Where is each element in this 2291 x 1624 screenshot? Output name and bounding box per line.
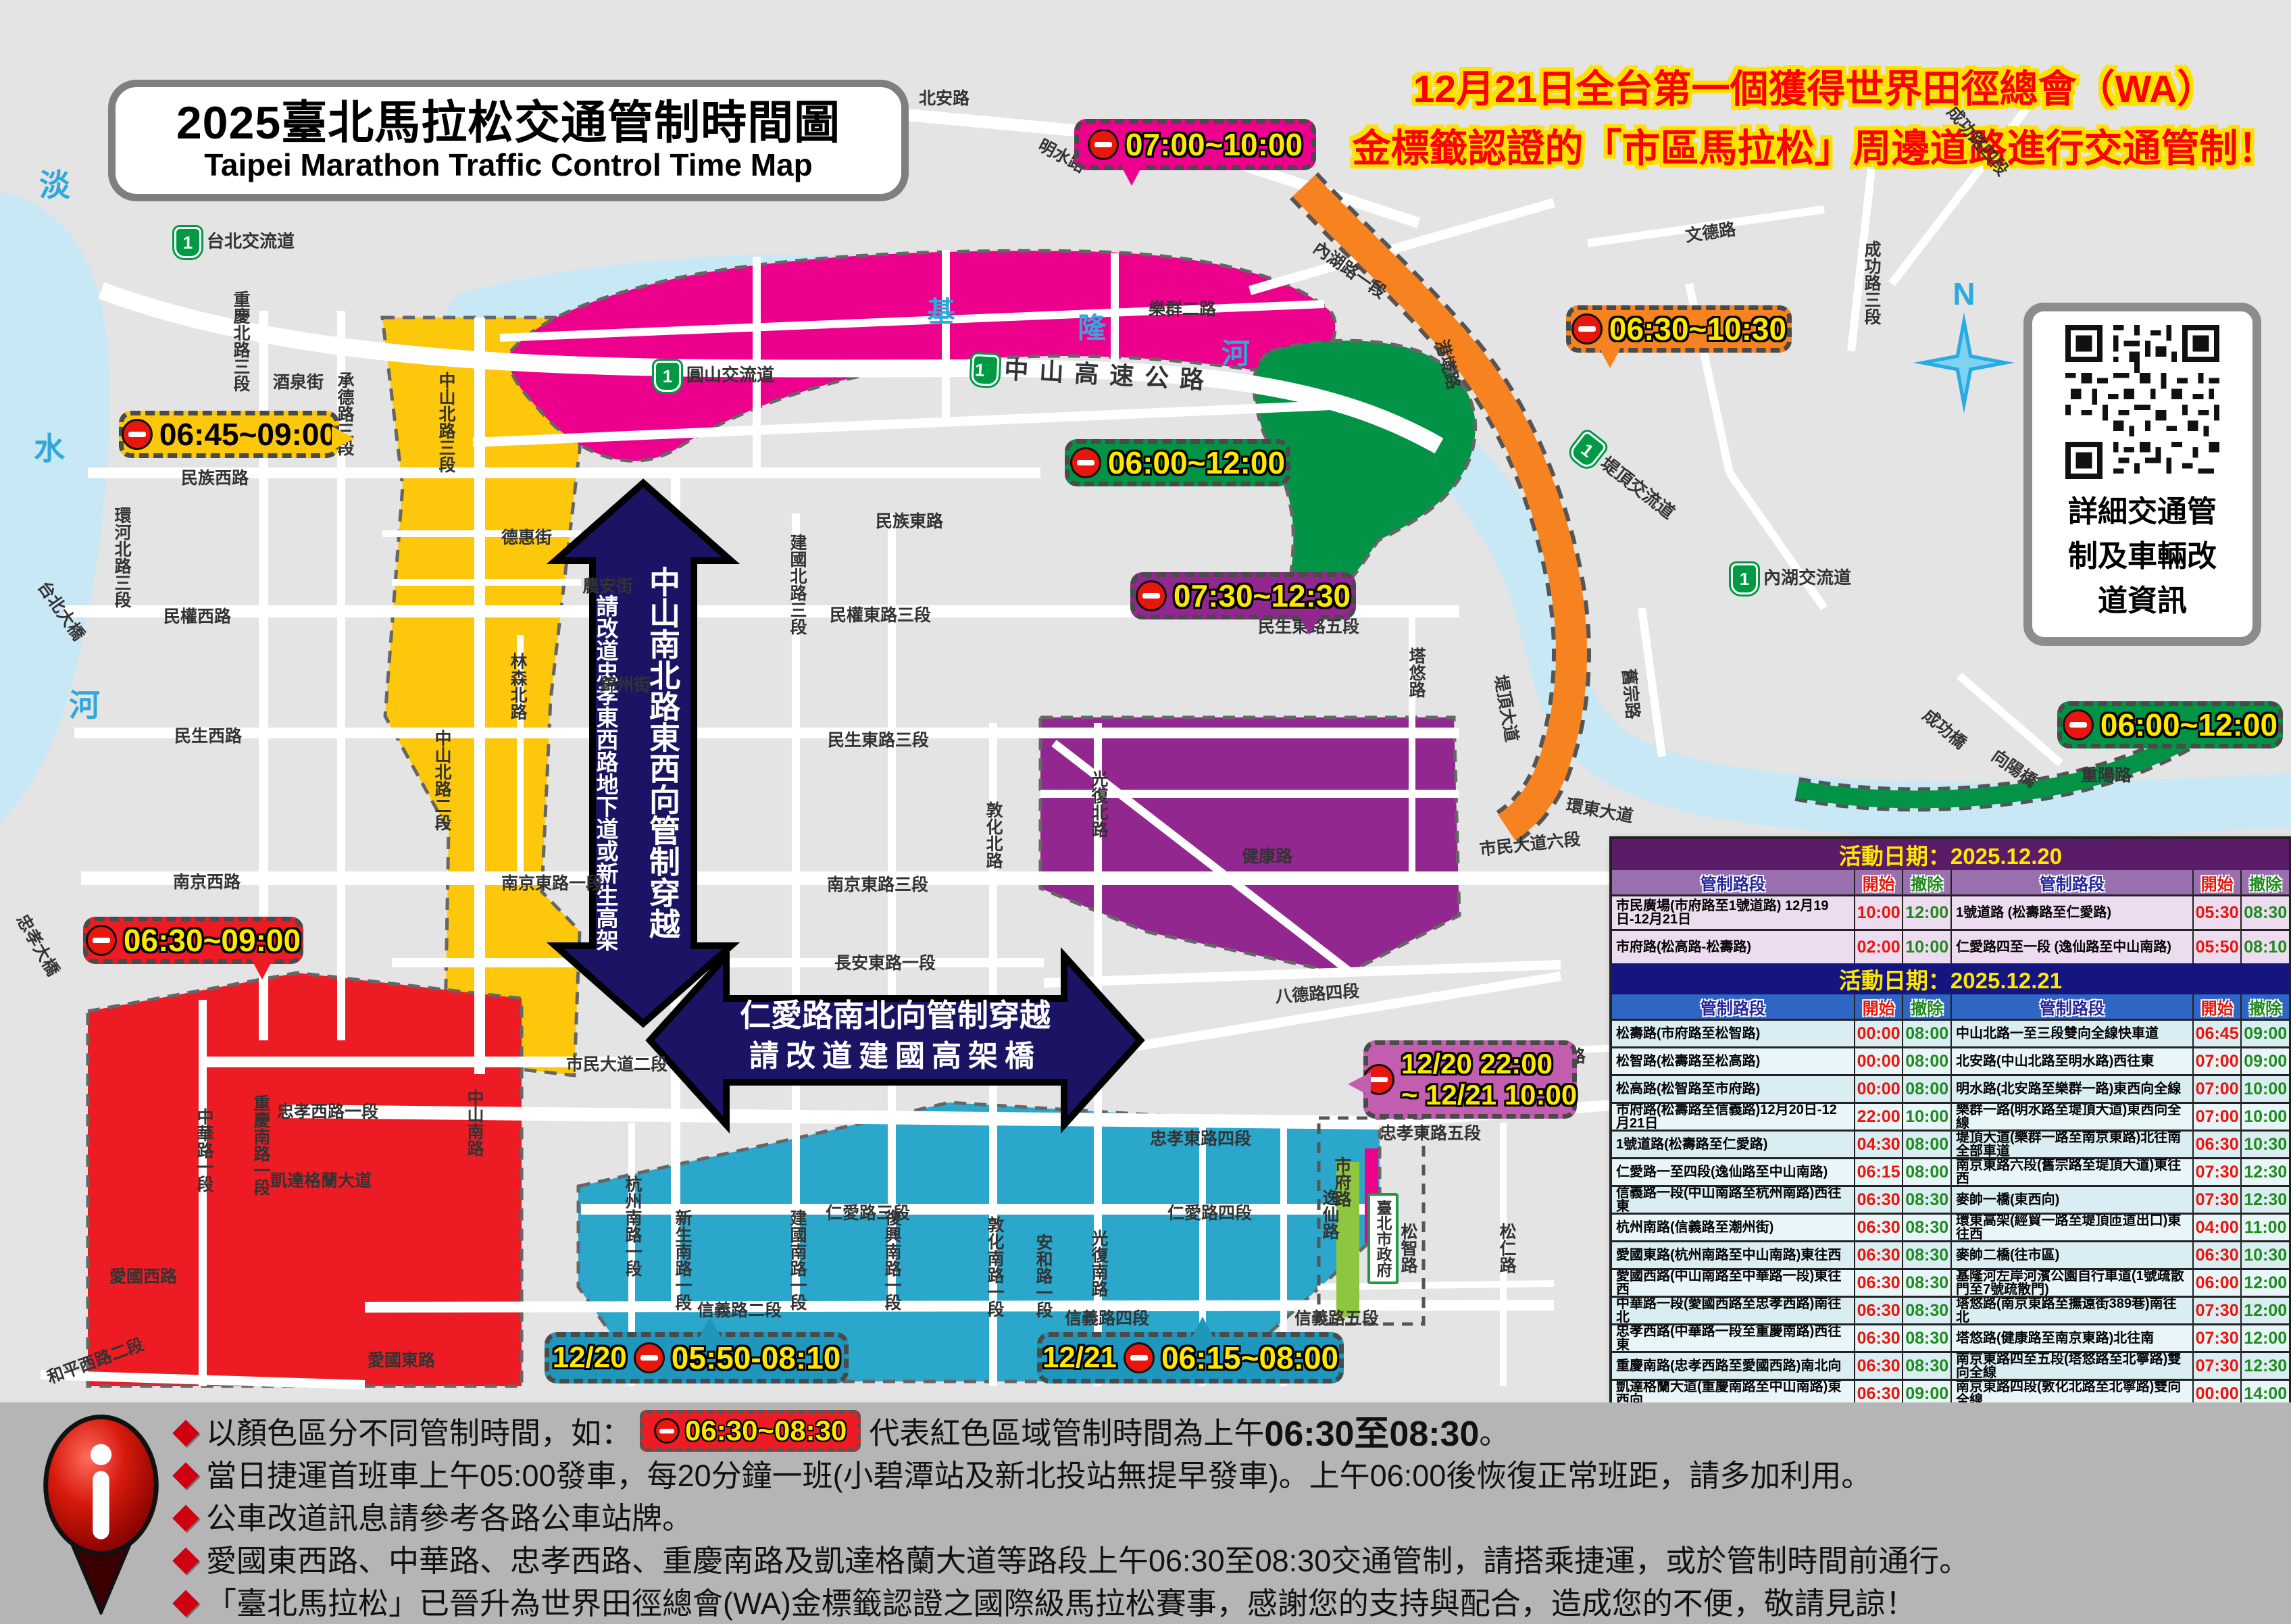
map-label: 松仁路 xyxy=(1494,1223,1519,1273)
map-label: 重慶北路三段 xyxy=(228,290,253,392)
no-entry-icon xyxy=(2063,709,2094,740)
badge-pointer xyxy=(698,1317,722,1340)
map-label: 淡 xyxy=(39,161,70,205)
road-segment-cell: 塔悠路(南京東路至撫遠街389巷)南往北 xyxy=(1950,1298,2192,1323)
diamond-bullet-icon: ◆ xyxy=(172,1538,199,1579)
diamond-bullet-icon: ◆ xyxy=(172,1453,199,1494)
map-label: 忠孝東路四段 xyxy=(1150,1125,1251,1150)
end-time-cell: 08:00 xyxy=(1902,1159,1950,1185)
no-entry-icon xyxy=(1070,447,1101,478)
highway-shield-icon: 1 xyxy=(971,354,999,386)
road-segment-cell: 南京東路六段(舊宗路至堤頂大道)東往西 xyxy=(1950,1159,2192,1185)
table-row: 市府路(松高路-松壽路)02:0010:00仁愛路四至一段 (逸仙路至中山南路)… xyxy=(1612,929,2289,963)
time-badge: 06:30~09:00 xyxy=(83,917,303,964)
map-label: 南京東路一段 xyxy=(501,870,603,894)
headline-line1: 12月21日全台第一個獲得世界田徑總會（WA） xyxy=(1338,59,2291,119)
time-badge: 12/2005:50-08:10 xyxy=(545,1332,849,1384)
road-segment-cell: 麥帥二橋(往市區) xyxy=(1950,1242,2192,1268)
time-badge: 12/20 22:00~ 12/21 10:00 xyxy=(1363,1040,1577,1119)
start-time-cell: 00:00 xyxy=(1854,1021,1903,1046)
map-label: 舊宗路 xyxy=(1617,667,1646,720)
end-time-cell: 09:00 xyxy=(2240,1048,2289,1074)
map-label: 民權西路 xyxy=(163,603,231,628)
table-header-cell: 開始 xyxy=(1854,870,1903,894)
road-segment-cell: 明水路(北安路至樂群一路)東西向全線 xyxy=(1950,1076,2192,1102)
legend-text: 以顏色區分不同管制時間，如： xyxy=(206,1409,632,1452)
end-time-cell: 11:00 xyxy=(2240,1215,2289,1240)
end-time-cell: 10:00 xyxy=(2240,1104,2289,1130)
map-label: 南京西路 xyxy=(173,869,241,893)
legend-item: ◆公車改道訊息請參考各路公車站牌。 xyxy=(172,1494,2287,1537)
no-entry-icon xyxy=(1136,580,1167,611)
legend-text: 「臺北馬拉松」已晉升為世界田徑總會(WA)金標籤認證之國際級馬拉松賽事，感謝您的… xyxy=(206,1579,1916,1623)
cityhall-label: 臺北市政府 xyxy=(1367,1193,1399,1284)
map-title-card: 2025臺北馬拉松交通管制時間圖 Taipei Marathon Traffic… xyxy=(108,80,909,201)
compass-n-label: N xyxy=(1913,276,2015,312)
map-label: 建國北路三段 xyxy=(785,534,809,635)
highway-shield-icon: 1 xyxy=(174,227,201,258)
map-label: 光復南路 xyxy=(1086,1229,1111,1297)
map-label: 民權東路三段 xyxy=(830,602,931,626)
table-row: 松高路(松智路至市府路)00:0008:00明水路(北安路至樂群一路)東西向全線… xyxy=(1612,1074,2289,1102)
table-header-cell: 管制路段 xyxy=(1950,870,2192,894)
road-segment-cell: 仁愛路一至四段(逸仙路至中山南路) xyxy=(1612,1159,1854,1185)
table-date-header: 活動日期：2025.12.21 xyxy=(1612,963,2289,994)
time-badge: 07:30~12:30 xyxy=(1130,572,1356,619)
road-segment-cell: 信義路一段(中山南路至杭州南路)西往東 xyxy=(1612,1187,1854,1213)
start-time-cell: 06:30 xyxy=(1854,1325,1903,1351)
headline-banner: 12月21日全台第一個獲得世界田徑總會（WA） 金標籤認證的「市區馬拉松」周邊道… xyxy=(1338,59,2291,179)
start-time-cell: 06:30 xyxy=(2192,1242,2241,1268)
map-label: 新生南路一段 xyxy=(670,1209,695,1311)
legend-item: ◆「臺北馬拉松」已晉升為世界田徑總會(WA)金標籤認證之國際級馬拉松賽事，感謝您… xyxy=(172,1579,2287,1622)
map-label: 南京東路三段 xyxy=(827,871,928,896)
road-segment-cell: 重慶南路(忠孝西路至愛國西路)南北向 xyxy=(1612,1353,1854,1379)
road-segment-cell: 松智路(松壽路至松高路) xyxy=(1612,1048,1854,1074)
road-segment-cell: 堤頂大道(樂群一路至南京東路)北往南全部車道 xyxy=(1950,1132,2192,1157)
start-time-cell: 00:00 xyxy=(1854,1076,1903,1102)
end-time-cell: 12:30 xyxy=(2240,1353,2289,1379)
page-title-zh: 2025臺北馬拉松交通管制時間圖 xyxy=(176,99,840,148)
start-time-cell: 07:00 xyxy=(2192,1076,2241,1102)
start-time-cell: 06:00 xyxy=(2192,1270,2241,1296)
map-label: 基 xyxy=(927,289,955,330)
end-time-cell: 08:30 xyxy=(1902,1242,1950,1268)
start-time-cell: 06:30 xyxy=(1854,1298,1903,1323)
road-segment-cell: 中山北路一至三段雙向全線快車道 xyxy=(1950,1021,2192,1046)
badge-time-text: 06:15~08:00 xyxy=(1161,1340,1338,1376)
tamsui-river xyxy=(0,193,109,821)
road-segment-cell: 基隆河左岸河濱公園自行車道(1號疏散門至7號疏散門) xyxy=(1950,1270,2192,1296)
diamond-bullet-icon: ◆ xyxy=(172,1496,199,1536)
table-section: 活動日期：2025.12.20管制路段開始撤除管制路段開始撤除市民廣場(市府路至… xyxy=(1612,839,2289,963)
map-label: 長安東路一段 xyxy=(834,950,936,974)
map-label: 敦化北路 xyxy=(981,801,1005,869)
end-time-cell: 12:00 xyxy=(2240,1298,2289,1323)
road-segment-cell: 塔悠路(健康路至南京東路)北往南 xyxy=(1950,1325,2192,1351)
badge-time-text: 07:30~12:30 xyxy=(1174,578,1351,614)
map-label: 敦化南路一段 xyxy=(982,1216,1007,1317)
end-time-cell: 10:00 xyxy=(2240,1076,2289,1102)
badge-pointer xyxy=(332,426,355,451)
badge-time-text: 06:30~09:00 xyxy=(124,922,301,959)
start-time-cell: 06:30 xyxy=(1854,1242,1903,1268)
start-time-cell: 06:30 xyxy=(1854,1215,1903,1240)
badge-date-label: 12/20 xyxy=(553,1341,627,1375)
road-segment-cell: 愛國東路(杭州南路至中山南路)東往西 xyxy=(1612,1242,1854,1268)
start-time-cell: 07:30 xyxy=(2192,1159,2241,1185)
map-label: 錦州街 xyxy=(600,671,651,696)
start-time-cell: 07:00 xyxy=(2192,1048,2241,1074)
end-time-cell: 08:10 xyxy=(2240,931,2289,963)
horizontal-arrow-text: 仁愛路南北向管制穿越 請改道建國高架橋 xyxy=(726,994,1064,1076)
qr-code xyxy=(2050,325,2234,479)
time-badge: 06:00~12:00 xyxy=(1065,439,1290,486)
end-time-cell: 08:30 xyxy=(1902,1298,1950,1323)
badge-pointer xyxy=(1598,345,1622,368)
start-time-cell: 10:00 xyxy=(1854,896,1903,929)
time-badge: 07:00~10:00 xyxy=(1074,119,1316,170)
highway-marker: 1台北交流道 xyxy=(174,227,295,258)
time-badge: 06:30~10:30 xyxy=(1566,305,1792,353)
table-header-cell: 撤除 xyxy=(1902,870,1950,894)
end-time-cell: 12:00 xyxy=(2240,1270,2289,1296)
end-time-cell: 08:00 xyxy=(1902,1048,1950,1074)
horizontal-arrow-line2: 請改道建國高架橋 xyxy=(726,1036,1064,1076)
map-label: 中山北路三段 xyxy=(434,372,458,473)
start-time-cell: 06:30 xyxy=(1854,1187,1903,1213)
legend-sample-time: 06:30~08:30 xyxy=(685,1415,847,1447)
map-label: 市府路 xyxy=(1330,1157,1354,1207)
badge-time-line: ~ 12/21 10:00 xyxy=(1401,1080,1577,1111)
start-time-cell: 07:30 xyxy=(2192,1187,2241,1213)
diamond-bullet-icon: ◆ xyxy=(172,1581,199,1621)
road-segment-cell: 市府路(松壽路至信義路)12月20日-12月21日 xyxy=(1612,1104,1854,1130)
map-label: 環河北路三段 xyxy=(109,507,134,608)
start-time-cell: 04:00 xyxy=(2192,1215,2241,1240)
map-label: 北安路 xyxy=(919,85,970,109)
badge-date-label: 12/21 xyxy=(1042,1341,1117,1375)
badge-pointer xyxy=(1119,163,1144,186)
map-label: 德惠街 xyxy=(501,524,552,549)
start-time-cell: 07:30 xyxy=(2192,1298,2241,1323)
map-label: 隆 xyxy=(1078,305,1106,347)
compass: N xyxy=(1913,276,2015,417)
end-time-cell: 10:00 xyxy=(1902,1104,1950,1130)
map-label: 信義路五段 xyxy=(1294,1305,1379,1329)
map-label: 市民大道二段 xyxy=(566,1051,668,1075)
map-label: 河 xyxy=(1222,331,1250,372)
map-label: 仁愛路四段 xyxy=(1167,1200,1252,1224)
road-segment-cell: 忠孝西路(中華路一段至重慶南路)西往東 xyxy=(1612,1325,1854,1351)
table-header-cell: 撤除 xyxy=(2240,870,2289,894)
road-segment-cell: 愛國西路(中山南路至中華路一段)東往西 xyxy=(1612,1270,1854,1296)
vertical-arrow-sub-text: 請改道忠孝東西路地下道或新生高架 xyxy=(589,594,622,973)
end-time-cell: 10:30 xyxy=(2240,1242,2289,1268)
end-time-cell: 12:30 xyxy=(2240,1159,2289,1185)
map-label: 復興南路一段 xyxy=(880,1209,904,1311)
badge-time-text: 06:00~12:00 xyxy=(2100,707,2277,743)
map-label: 光復北路 xyxy=(1086,770,1111,838)
map-label: 松智路 xyxy=(1396,1223,1420,1273)
horizontal-arrow-line1: 仁愛路南北向管制穿越 xyxy=(726,994,1064,1036)
map-label: 民族東路 xyxy=(876,508,943,532)
table-row: 松壽路(市府路至松智路)00:0008:00中山北路一至三段雙向全線快車道06:… xyxy=(1612,1019,2289,1046)
road-segment-cell: 仁愛路四至一段 (逸仙路至中山南路) xyxy=(1950,931,2192,963)
start-time-cell: 07:30 xyxy=(2192,1325,2241,1351)
end-time-cell: 09:00 xyxy=(2240,1021,2289,1046)
road-segment-cell: 南京東路四至五段(塔悠路至北寧路)雙向全線 xyxy=(1950,1353,2192,1379)
legend-sample-badge: 06:30~08:30 xyxy=(640,1410,861,1452)
road-segment-cell: 環東高架(經貿一路至堤頂匝道出口)東往西 xyxy=(1950,1215,2192,1240)
start-time-cell: 06:15 xyxy=(1854,1159,1903,1185)
road-segment-cell: 1號道路 (松壽路至仁愛路) xyxy=(1950,896,2192,929)
road-segment-cell: 杭州南路(信義路至潮州街) xyxy=(1612,1215,1854,1240)
time-badge: 12/2106:15~08:00 xyxy=(1037,1332,1344,1384)
no-entry-icon xyxy=(122,419,153,450)
start-time-cell: 07:00 xyxy=(2192,1104,2241,1130)
badge-pointer xyxy=(250,957,274,980)
no-entry-icon xyxy=(634,1342,665,1373)
map-label: 凱達格蘭大道 xyxy=(270,1167,372,1192)
end-time-cell: 08:00 xyxy=(1902,1132,1950,1157)
table-row: 愛國東路(杭州南路至中山南路)東往西06:3008:30麥帥二橋(往市區)06:… xyxy=(1612,1240,2289,1268)
no-entry-icon xyxy=(1571,313,1603,345)
highway-marker: 1圓山交流道 xyxy=(654,361,774,392)
map-label: 忠孝西路一段 xyxy=(277,1098,378,1123)
map-label: 樂群二路 xyxy=(1149,296,1216,320)
end-time-cell: 08:00 xyxy=(1902,1076,1950,1102)
start-time-cell: 06:45 xyxy=(2192,1021,2241,1046)
badge-time-text: 06:30~10:30 xyxy=(1609,311,1786,347)
qr-info-card: 詳細交通管制及車輛改道資訊 xyxy=(2023,303,2261,646)
map-label: 中山南路 xyxy=(462,1089,486,1157)
table-header-row: 管制路段開始撤除管制路段開始撤除 xyxy=(1612,870,2289,894)
page-title-en: Taipei Marathon Traffic Control Time Map xyxy=(204,149,813,182)
badge-pointer xyxy=(1348,1072,1371,1096)
badge-time-text: 07:00~10:00 xyxy=(1126,126,1303,163)
map-label: 重慶南路一段 xyxy=(249,1094,273,1196)
no-entry-icon xyxy=(86,925,117,956)
road-segment-cell: 1號道路(松壽路至仁愛路) xyxy=(1612,1132,1854,1157)
road-segment-cell: 麥帥一橋(東西向) xyxy=(1950,1187,2192,1213)
diamond-bullet-icon: ◆ xyxy=(172,1411,199,1451)
info-pin-icon xyxy=(42,1415,160,1615)
map-label: 中華路一段 xyxy=(192,1108,216,1192)
badge-pointer xyxy=(1190,1317,1215,1340)
map-label: 信義路四段 xyxy=(1065,1305,1149,1329)
table-header-cell: 管制路段 xyxy=(1612,994,1854,1019)
end-time-cell: 08:30 xyxy=(1902,1215,1950,1240)
end-time-cell: 08:30 xyxy=(1902,1270,1950,1296)
road-segment-cell: 市府路(松高路-松壽路) xyxy=(1612,931,1854,963)
map-label: 健康路 xyxy=(1242,843,1292,867)
table-header-cell: 開始 xyxy=(2192,994,2241,1019)
table-row: 杭州南路(信義路至潮州街)06:3008:30環東高架(經貿一路至堤頂匝道出口)… xyxy=(1612,1213,2289,1240)
table-header-cell: 開始 xyxy=(1854,994,1903,1019)
legend-text: 公車改道訊息請參考各路公車站牌。 xyxy=(206,1494,693,1538)
badge-time-text: 05:50-08:10 xyxy=(672,1340,841,1376)
map-label: 民生西路 xyxy=(174,723,242,747)
map-label: 成功路三段 xyxy=(1859,240,1884,325)
map-label: 塔悠路 xyxy=(1404,647,1428,698)
table-header-cell: 開始 xyxy=(2192,870,2241,894)
table-row: 1號道路(松壽路至仁愛路)04:3008:00堤頂大道(樂群一路至南京東路)北往… xyxy=(1612,1130,2289,1157)
legend-item: ◆以顏色區分不同管制時間，如：06:30~08:30 代表紅色區域管制時間為上午… xyxy=(172,1409,2287,1452)
no-entry-icon xyxy=(1088,129,1119,160)
traffic-control-map-page: 2025臺北馬拉松交通管制時間圖 Taipei Marathon Traffic… xyxy=(0,0,2291,1624)
start-time-cell: 05:30 xyxy=(2192,896,2241,929)
map-label: 酒泉街 xyxy=(273,369,324,393)
table-row: 忠孝西路(中華路一段至重慶南路)西往東06:3008:30塔悠路(健康路至南京東… xyxy=(1612,1323,2289,1351)
legend-notes: ◆以顏色區分不同管制時間，如：06:30~08:30 代表紅色區域管制時間為上午… xyxy=(172,1409,2287,1622)
map-label: 重陽路 xyxy=(2081,762,2132,786)
end-time-cell: 12:00 xyxy=(2240,1325,2289,1351)
table-date-header: 活動日期：2025.12.20 xyxy=(1612,839,2289,870)
highway-shield-icon: 1 xyxy=(654,361,681,392)
legend-text: 代表紅色區域管制時間為上午 xyxy=(869,1409,1264,1452)
end-time-cell: 10:30 xyxy=(2240,1132,2289,1157)
control-schedule-table: 活動日期：2025.12.20管制路段開始撤除管制路段開始撤除市民廣場(市府路至… xyxy=(1609,836,2291,1437)
vertical-arrow-main-text: 中山南北路東西向管制穿越 xyxy=(640,566,685,958)
road-segment-cell: 樂群一路(明水路至堤頂大道)東西向全線 xyxy=(1950,1104,2192,1130)
start-time-cell: 22:00 xyxy=(1854,1104,1903,1130)
headline-line2: 金標籤認證的「市區馬拉松」周邊道路進行交通管制！ xyxy=(1338,119,2291,178)
badge-time-text: 06:45~09:00 xyxy=(159,416,336,453)
time-badge: 06:00~12:00 xyxy=(2057,701,2283,748)
map-label: 農安街 xyxy=(582,573,633,597)
highway-shield-icon: 1 xyxy=(1731,563,1758,594)
end-time-cell: 12:30 xyxy=(2240,1187,2289,1213)
legend-text: 愛國東西路、中華路、忠孝西路、重慶南路及凱達格蘭大道等路段上午06:30至08:… xyxy=(206,1536,1969,1580)
road-segment-cell: 松高路(松智路至市府路) xyxy=(1612,1076,1854,1102)
map-label: 杭州南路一段 xyxy=(620,1175,645,1277)
map-label: 安和路一段 xyxy=(1031,1234,1055,1318)
road-segment-cell: 中華路一段(愛國西路至忠孝西路)南往北 xyxy=(1612,1298,1854,1323)
start-time-cell: 00:00 xyxy=(1854,1048,1903,1074)
table-row: 重慶南路(忠孝西路至愛國西路)南北向06:3008:30南京東路四至五段(塔悠路… xyxy=(1612,1351,2289,1379)
legend-item: ◆當日捷運首班車上午05:00發車，每20分鐘一班(小碧潭站及新北投站無提早發車… xyxy=(172,1452,2287,1494)
road-segment-cell: 北安路(中山北路至明水路)西往東 xyxy=(1950,1048,2192,1074)
table-header-cell: 管制路段 xyxy=(1950,994,2192,1019)
start-time-cell: 05:50 xyxy=(2192,931,2241,963)
end-time-cell: 12:00 xyxy=(1902,896,1950,929)
end-time-cell: 08:30 xyxy=(1902,1187,1950,1213)
table-row: 市府路(松壽路至信義路)12月20日-12月21日22:0010:00樂群一路(… xyxy=(1612,1102,2289,1130)
table-row: 信義路一段(中山南路至杭州南路)西往東06:3008:30麥帥一橋(東西向)07… xyxy=(1612,1185,2289,1213)
highway-marker: 1內湖交流道 xyxy=(1731,563,1851,594)
start-time-cell: 06:30 xyxy=(2192,1132,2241,1157)
legend-text: 。 xyxy=(1479,1409,1509,1452)
map-label: 林森北路 xyxy=(505,653,530,720)
start-time-cell: 02:00 xyxy=(1854,931,1903,963)
table-header-row: 管制路段開始撤除管制路段開始撤除 xyxy=(1612,994,2289,1019)
end-time-cell: 08:30 xyxy=(1902,1353,1950,1379)
time-badge: 06:45~09:00 xyxy=(119,411,339,458)
start-time-cell: 06:30 xyxy=(1854,1270,1903,1296)
legend-bold-time: 06:30至08:30 xyxy=(1264,1405,1479,1456)
start-time-cell: 06:30 xyxy=(1854,1353,1903,1379)
table-row: 松智路(松壽路至松高路)00:0008:00北安路(中山北路至明水路)西往東07… xyxy=(1612,1046,2289,1074)
start-time-cell: 04:30 xyxy=(1854,1132,1903,1157)
table-row: 愛國西路(中山南路至中華路一段)東往西06:3008:30基隆河左岸河濱公園自行… xyxy=(1612,1268,2289,1296)
table-header-cell: 撤除 xyxy=(1902,994,1950,1019)
table-section: 活動日期：2025.12.21管制路段開始撤除管制路段開始撤除松壽路(市府路至松… xyxy=(1612,963,2289,1434)
road-segment-cell: 松壽路(市府路至松智路) xyxy=(1612,1021,1854,1046)
legend-text: 當日捷運首班車上午05:00發車，每20分鐘一班(小碧潭站及新北投站無提早發車)… xyxy=(206,1451,1871,1495)
end-time-cell: 08:30 xyxy=(1902,1325,1950,1351)
end-time-cell: 08:30 xyxy=(2240,896,2289,929)
compass-rose-icon xyxy=(1913,312,2015,413)
map-label: 水 xyxy=(34,424,65,469)
map-label: 忠孝東路五段 xyxy=(1380,1120,1481,1144)
map-label: 民族西路 xyxy=(181,465,249,489)
map-label: 中山北路二段 xyxy=(430,730,454,831)
qr-caption: 詳細交通管制及車輛改道資訊 xyxy=(2064,490,2221,624)
end-time-cell: 10:00 xyxy=(1902,931,1950,963)
start-time-cell: 07:30 xyxy=(2192,1353,2241,1379)
map-label: 民生東路三段 xyxy=(828,727,929,751)
badge-pointer xyxy=(1297,612,1321,635)
table-row: 仁愛路一至四段(逸仙路至中山南路)06:1508:00南京東路六段(舊宗路至堤頂… xyxy=(1612,1157,2289,1185)
map-label: 愛國東路 xyxy=(368,1347,435,1371)
map-label: 建國南路一段 xyxy=(785,1209,809,1311)
end-time-cell: 08:00 xyxy=(1902,1021,1950,1046)
table-row: 中華路一段(愛國西路至忠孝西路)南往北06:3008:30塔悠路(南京東路至撫遠… xyxy=(1612,1296,2289,1323)
badge-time-lines: 12/20 22:00~ 12/21 10:00 xyxy=(1401,1048,1577,1111)
legend-item: ◆愛國東西路、中華路、忠孝西路、重慶南路及凱達格蘭大道等路段上午06:30至08… xyxy=(172,1537,2287,1579)
table-row: 市民廣場(市府路至1號道路) 12月19日-12月21日10:0012:001號… xyxy=(1612,894,2289,929)
no-entry-icon xyxy=(654,1418,680,1444)
map-label: 愛國西路 xyxy=(109,1263,177,1288)
road-segment-cell: 市民廣場(市府路至1號道路) 12月19日-12月21日 xyxy=(1612,896,1854,929)
badge-time-line: 12/20 22:00 xyxy=(1401,1048,1553,1080)
no-entry-icon xyxy=(1124,1342,1155,1373)
map-label: 河 xyxy=(69,681,100,726)
table-header-cell: 管制路段 xyxy=(1612,870,1854,894)
badge-time-text: 06:00~12:00 xyxy=(1108,445,1285,481)
table-header-cell: 撤除 xyxy=(2240,994,2289,1019)
